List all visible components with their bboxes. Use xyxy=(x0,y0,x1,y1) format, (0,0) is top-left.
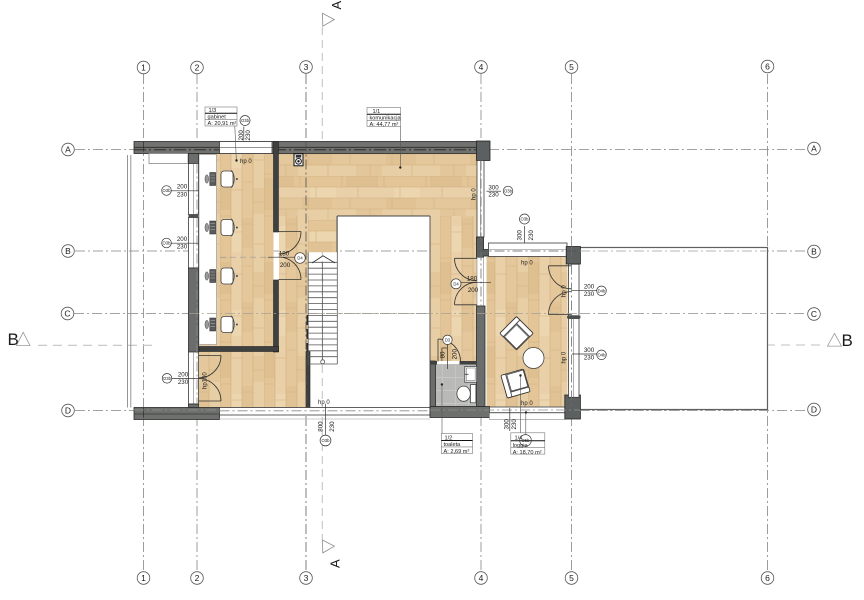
svg-text:O3b: O3b xyxy=(241,118,250,123)
svg-text:1/3: 1/3 xyxy=(209,108,217,114)
svg-text:230: 230 xyxy=(511,419,518,430)
svg-text:hp 0: hp 0 xyxy=(318,400,330,406)
svg-text:80: 80 xyxy=(440,351,447,358)
svg-text:hp100: hp100 xyxy=(203,372,209,389)
svg-text:toaleta: toaleta xyxy=(444,442,462,448)
svg-text:O4b: O4b xyxy=(598,352,607,357)
svg-text:hp 0: hp 0 xyxy=(562,285,568,297)
svg-text:gabinet: gabinet xyxy=(208,115,227,121)
svg-text:A: A xyxy=(329,1,344,10)
svg-text:200: 200 xyxy=(280,262,291,269)
svg-text:6: 6 xyxy=(765,573,770,583)
svg-text:180: 180 xyxy=(467,275,478,282)
svg-text:800: 800 xyxy=(317,421,324,432)
svg-text:200: 200 xyxy=(468,287,479,294)
svg-text:300: 300 xyxy=(488,184,499,191)
svg-text:230: 230 xyxy=(329,421,336,432)
svg-text:B: B xyxy=(65,246,71,256)
svg-text:D4b: D4b xyxy=(598,288,606,293)
svg-text:230: 230 xyxy=(177,191,188,198)
svg-text:230: 230 xyxy=(528,230,535,241)
svg-text:O5b: O5b xyxy=(522,438,531,443)
svg-text:D4: D4 xyxy=(297,256,303,261)
svg-text:4: 4 xyxy=(479,573,484,583)
svg-text:230: 230 xyxy=(584,355,595,362)
svg-text:200: 200 xyxy=(238,130,245,141)
svg-text:200: 200 xyxy=(178,371,189,378)
svg-text:A: 2,69 m²: A: 2,69 m² xyxy=(444,449,470,455)
svg-text:230: 230 xyxy=(488,192,499,199)
svg-text:200: 200 xyxy=(451,349,458,360)
svg-text:200: 200 xyxy=(584,283,595,290)
svg-text:B: B xyxy=(842,331,853,350)
svg-text:hp 0: hp 0 xyxy=(562,351,568,363)
svg-text:200: 200 xyxy=(177,184,188,191)
svg-text:A: A xyxy=(328,559,343,568)
svg-text:5: 5 xyxy=(569,62,574,72)
svg-text:D4: D4 xyxy=(453,281,459,286)
svg-text:2: 2 xyxy=(195,573,200,583)
svg-text:230: 230 xyxy=(584,291,595,298)
svg-text:230: 230 xyxy=(178,379,189,386)
svg-text:O3b: O3b xyxy=(322,438,331,443)
svg-text:1: 1 xyxy=(141,63,146,73)
svg-text:230: 230 xyxy=(245,130,252,141)
svg-text:6: 6 xyxy=(765,62,770,72)
svg-text:A: 18,70 m²: A: 18,70 m² xyxy=(513,450,542,456)
svg-text:1: 1 xyxy=(141,573,146,583)
svg-text:300: 300 xyxy=(516,230,523,241)
svg-text:C: C xyxy=(64,309,70,319)
svg-text:230: 230 xyxy=(177,244,188,251)
svg-text:200: 200 xyxy=(177,236,188,243)
svg-text:hp 0: hp 0 xyxy=(240,159,252,165)
svg-text:3: 3 xyxy=(304,62,309,72)
svg-text:hp 0: hp 0 xyxy=(521,401,533,407)
svg-text:3: 3 xyxy=(304,573,309,583)
svg-text:O3b: O3b xyxy=(163,188,172,193)
svg-text:4: 4 xyxy=(479,62,484,72)
svg-text:A: 20,91 m²: A: 20,91 m² xyxy=(208,121,237,127)
svg-text:hp 0: hp 0 xyxy=(472,188,478,200)
svg-text:D: D xyxy=(65,406,71,416)
svg-text:O3b: O3b xyxy=(163,241,172,246)
svg-text:A: A xyxy=(811,144,817,154)
svg-text:180: 180 xyxy=(279,250,290,257)
svg-text:hp 0: hp 0 xyxy=(521,261,533,267)
svg-text:komunikacja: komunikacja xyxy=(370,116,402,122)
svg-text:D3: D3 xyxy=(445,337,451,342)
svg-text:A: 44,77 m²: A: 44,77 m² xyxy=(370,122,399,128)
svg-text:O3b: O3b xyxy=(521,217,530,222)
svg-text:2: 2 xyxy=(195,63,200,73)
svg-text:1/2: 1/2 xyxy=(445,436,453,442)
svg-text:1/1: 1/1 xyxy=(373,109,381,115)
svg-text:C: C xyxy=(811,309,817,319)
svg-text:300: 300 xyxy=(584,347,595,354)
svg-text:B: B xyxy=(811,247,817,257)
svg-text:5: 5 xyxy=(569,573,574,583)
svg-text:D: D xyxy=(811,405,817,415)
svg-text:O3b: O3b xyxy=(504,189,513,194)
svg-text:A: A xyxy=(65,145,71,155)
svg-text:O3b: O3b xyxy=(163,376,172,381)
svg-text:B: B xyxy=(8,330,19,349)
